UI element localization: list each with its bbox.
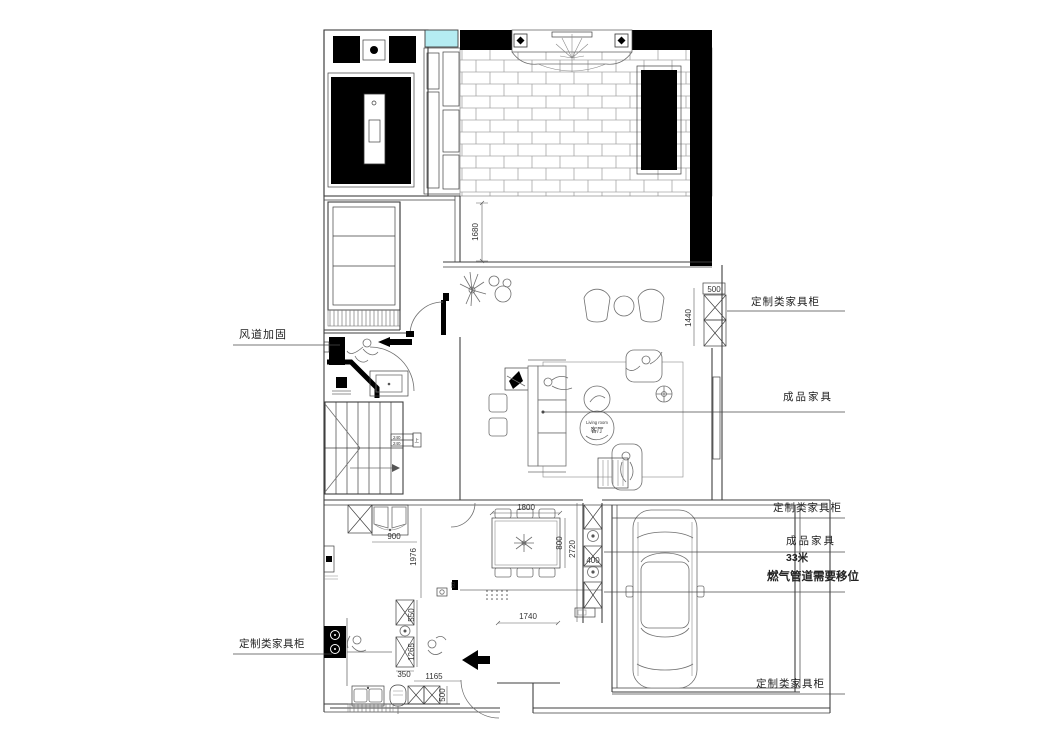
fridge	[372, 505, 408, 535]
terrace-pillar	[641, 70, 677, 170]
car-mirror-right	[697, 586, 704, 597]
top-wall-right	[632, 30, 690, 50]
callout-custom-cabinet-bottom-left: 定制类家具柜	[239, 639, 305, 650]
entry-arrow-icon	[462, 650, 490, 670]
ceiling-panel-right	[389, 36, 416, 63]
staircase: 240 240 上	[325, 402, 421, 494]
dim-350: 350	[397, 670, 411, 679]
dining-door-arc	[451, 503, 475, 527]
dim-400: 400	[586, 556, 600, 565]
dining-table	[492, 509, 560, 577]
dim-1165: 1165	[425, 672, 443, 681]
cooktop	[324, 626, 346, 658]
floor-plan-drawing: 240 240 上	[0, 0, 1046, 740]
vanity	[370, 371, 408, 396]
top-wall-left	[460, 30, 512, 50]
callout-33-meters: 33米	[786, 553, 808, 564]
equipment-unit	[364, 94, 385, 164]
armchair	[626, 350, 662, 382]
dim-1976: 1976	[409, 548, 418, 566]
dim-1740: 1740	[519, 612, 537, 621]
dim-1680: 1680	[471, 223, 480, 241]
garage	[602, 500, 830, 692]
bathroom	[324, 333, 414, 398]
living-room: Living room 客厅	[460, 272, 726, 500]
dim-2720: 2720	[568, 540, 577, 558]
stool	[489, 418, 507, 436]
floor-drain	[336, 377, 347, 388]
dim-900: 900	[387, 532, 401, 541]
stair-riser-1: 240	[393, 435, 401, 440]
dim-60: 60	[451, 582, 457, 588]
stair-tag: 240 240 上	[391, 433, 421, 447]
car-mirror-left	[626, 586, 633, 597]
terrace	[443, 30, 712, 267]
callout-custom-cabinet-top-right: 定制类家具柜	[751, 297, 820, 308]
floor-plan-canvas: 240 240 上	[0, 0, 1046, 740]
dim-500-entry: 500	[438, 688, 447, 702]
living-room-label-en: Living room	[586, 420, 608, 425]
wall-arrow-icon	[378, 337, 390, 347]
right-wall-band	[690, 30, 712, 266]
kitchen-window	[348, 704, 393, 712]
car	[626, 510, 704, 688]
callout-finished-furniture-right: 成品家具	[786, 536, 836, 547]
floor-mat-dots	[486, 590, 508, 600]
centerpiece-icon	[514, 534, 534, 552]
person-figure	[347, 636, 366, 651]
callout-gas-pipe-note: 燃气管道需要移位	[767, 572, 859, 584]
shower	[327, 362, 377, 398]
stair-up-label: 上	[415, 437, 420, 443]
grille-strip	[328, 310, 400, 326]
living-room-label-cn: 客厅	[591, 425, 605, 434]
room-label-circle: Living room 客厅	[580, 386, 614, 445]
stair-direction-arrow-icon	[392, 464, 400, 472]
door-leaf	[441, 300, 446, 335]
chaise	[612, 444, 642, 490]
kitchen-sink	[352, 686, 384, 706]
dim-500-cabinet: 500	[707, 285, 721, 294]
callout-custom-cabinet-bottom-right: 定制类家具柜	[756, 679, 825, 690]
shelf-column	[424, 30, 462, 194]
entry-hall	[428, 580, 602, 718]
entry-base-cabinets	[408, 686, 440, 704]
skylight-window	[425, 30, 458, 47]
callout-custom-cabinet-right: 定制类家具柜	[773, 503, 842, 514]
stool	[489, 394, 507, 412]
dim-1265: 1265	[407, 643, 416, 661]
hall-door	[406, 293, 460, 500]
dim-1800: 1800	[517, 503, 535, 512]
callout-duct-reinforce: 风道加固	[239, 330, 287, 341]
dim-800: 800	[555, 536, 564, 550]
table-lamp-icon	[507, 371, 525, 389]
downlight-icon	[370, 46, 378, 54]
media-room	[324, 30, 428, 196]
plant-pots-icon	[489, 276, 511, 302]
person-figure	[428, 636, 446, 654]
wall-stub	[390, 339, 412, 345]
dim-1440: 1440	[684, 309, 693, 327]
stair-riser-2: 240	[393, 441, 401, 446]
dim-550: 550	[407, 608, 416, 622]
lounge-chairs	[584, 289, 664, 322]
ceiling-panel-left	[333, 36, 360, 63]
flower-stand-icon	[656, 386, 672, 402]
person-figure	[347, 339, 378, 362]
bay-window-room	[324, 196, 460, 330]
callout-finished-furniture-mid: 成品家具	[783, 392, 833, 403]
plant-icon	[460, 272, 486, 306]
